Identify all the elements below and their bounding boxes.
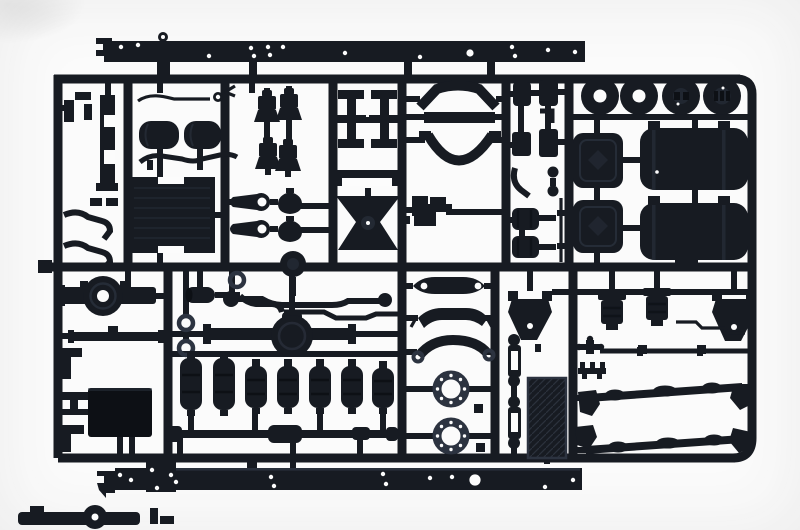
leaf-spring-1 [413, 277, 485, 294]
leaf-spring-2 [411, 308, 492, 328]
front-axle-housing [57, 276, 156, 316]
wheel-disc-4 [703, 77, 741, 115]
o-ring-1 [179, 316, 193, 330]
spring-shackle-1 [508, 334, 521, 387]
air-tank-2 [184, 121, 221, 149]
fender-bar [424, 112, 495, 123]
shock-absorber-group [230, 188, 302, 242]
tread-plate [528, 378, 566, 458]
brake-cylinder-1 [598, 292, 626, 330]
crossbar [68, 326, 164, 343]
air-bellows-group [180, 351, 394, 416]
chassis-rail-top [96, 32, 585, 79]
storage-box [88, 388, 152, 437]
crossmember-2 [369, 90, 399, 148]
fuel-tank-1 [640, 121, 748, 190]
torque-rod-1 [578, 383, 752, 417]
fender-arch-inner [419, 131, 501, 161]
battery-box-1 [573, 133, 623, 188]
step-bracket [412, 196, 452, 226]
brake-cylinder-2 [643, 288, 671, 326]
nut-fittings [474, 404, 485, 452]
hub-cap [280, 251, 306, 277]
tow-hooks [64, 212, 110, 268]
air-tank-1 [139, 121, 179, 149]
radiator [129, 177, 215, 253]
drive-shaft [166, 425, 398, 443]
fuel-tank-2 [640, 196, 748, 260]
wheel-hub-ring-2 [436, 421, 466, 451]
crossmember-1 [336, 90, 366, 148]
torque-rod-2 [575, 425, 751, 454]
o-ring-3 [230, 273, 244, 287]
wheel-disc-3 [662, 77, 700, 115]
spring-shackle-2 [508, 396, 521, 449]
fender-arch-top [420, 80, 496, 107]
channel-bracket [336, 170, 398, 186]
cross-fitting [576, 336, 604, 354]
brake-chamber-group [254, 88, 302, 177]
corner-axle [18, 505, 174, 529]
wheel-disc-1 [581, 77, 619, 115]
wheel-disc-2 [620, 77, 658, 115]
small-muffler [185, 287, 215, 303]
wheel-hub-ring-1 [436, 374, 466, 404]
manifold-fitting [578, 362, 606, 379]
engine-mount-left [508, 291, 552, 340]
small-brackets-lower-left [62, 348, 88, 452]
tall-bracket [96, 95, 118, 191]
leaf-spring-3 [414, 340, 494, 362]
battery-box-2 [573, 200, 623, 253]
photo-canvas [0, 0, 800, 530]
stabilizer-rod [138, 86, 235, 102]
sprue-svg [0, 0, 800, 530]
